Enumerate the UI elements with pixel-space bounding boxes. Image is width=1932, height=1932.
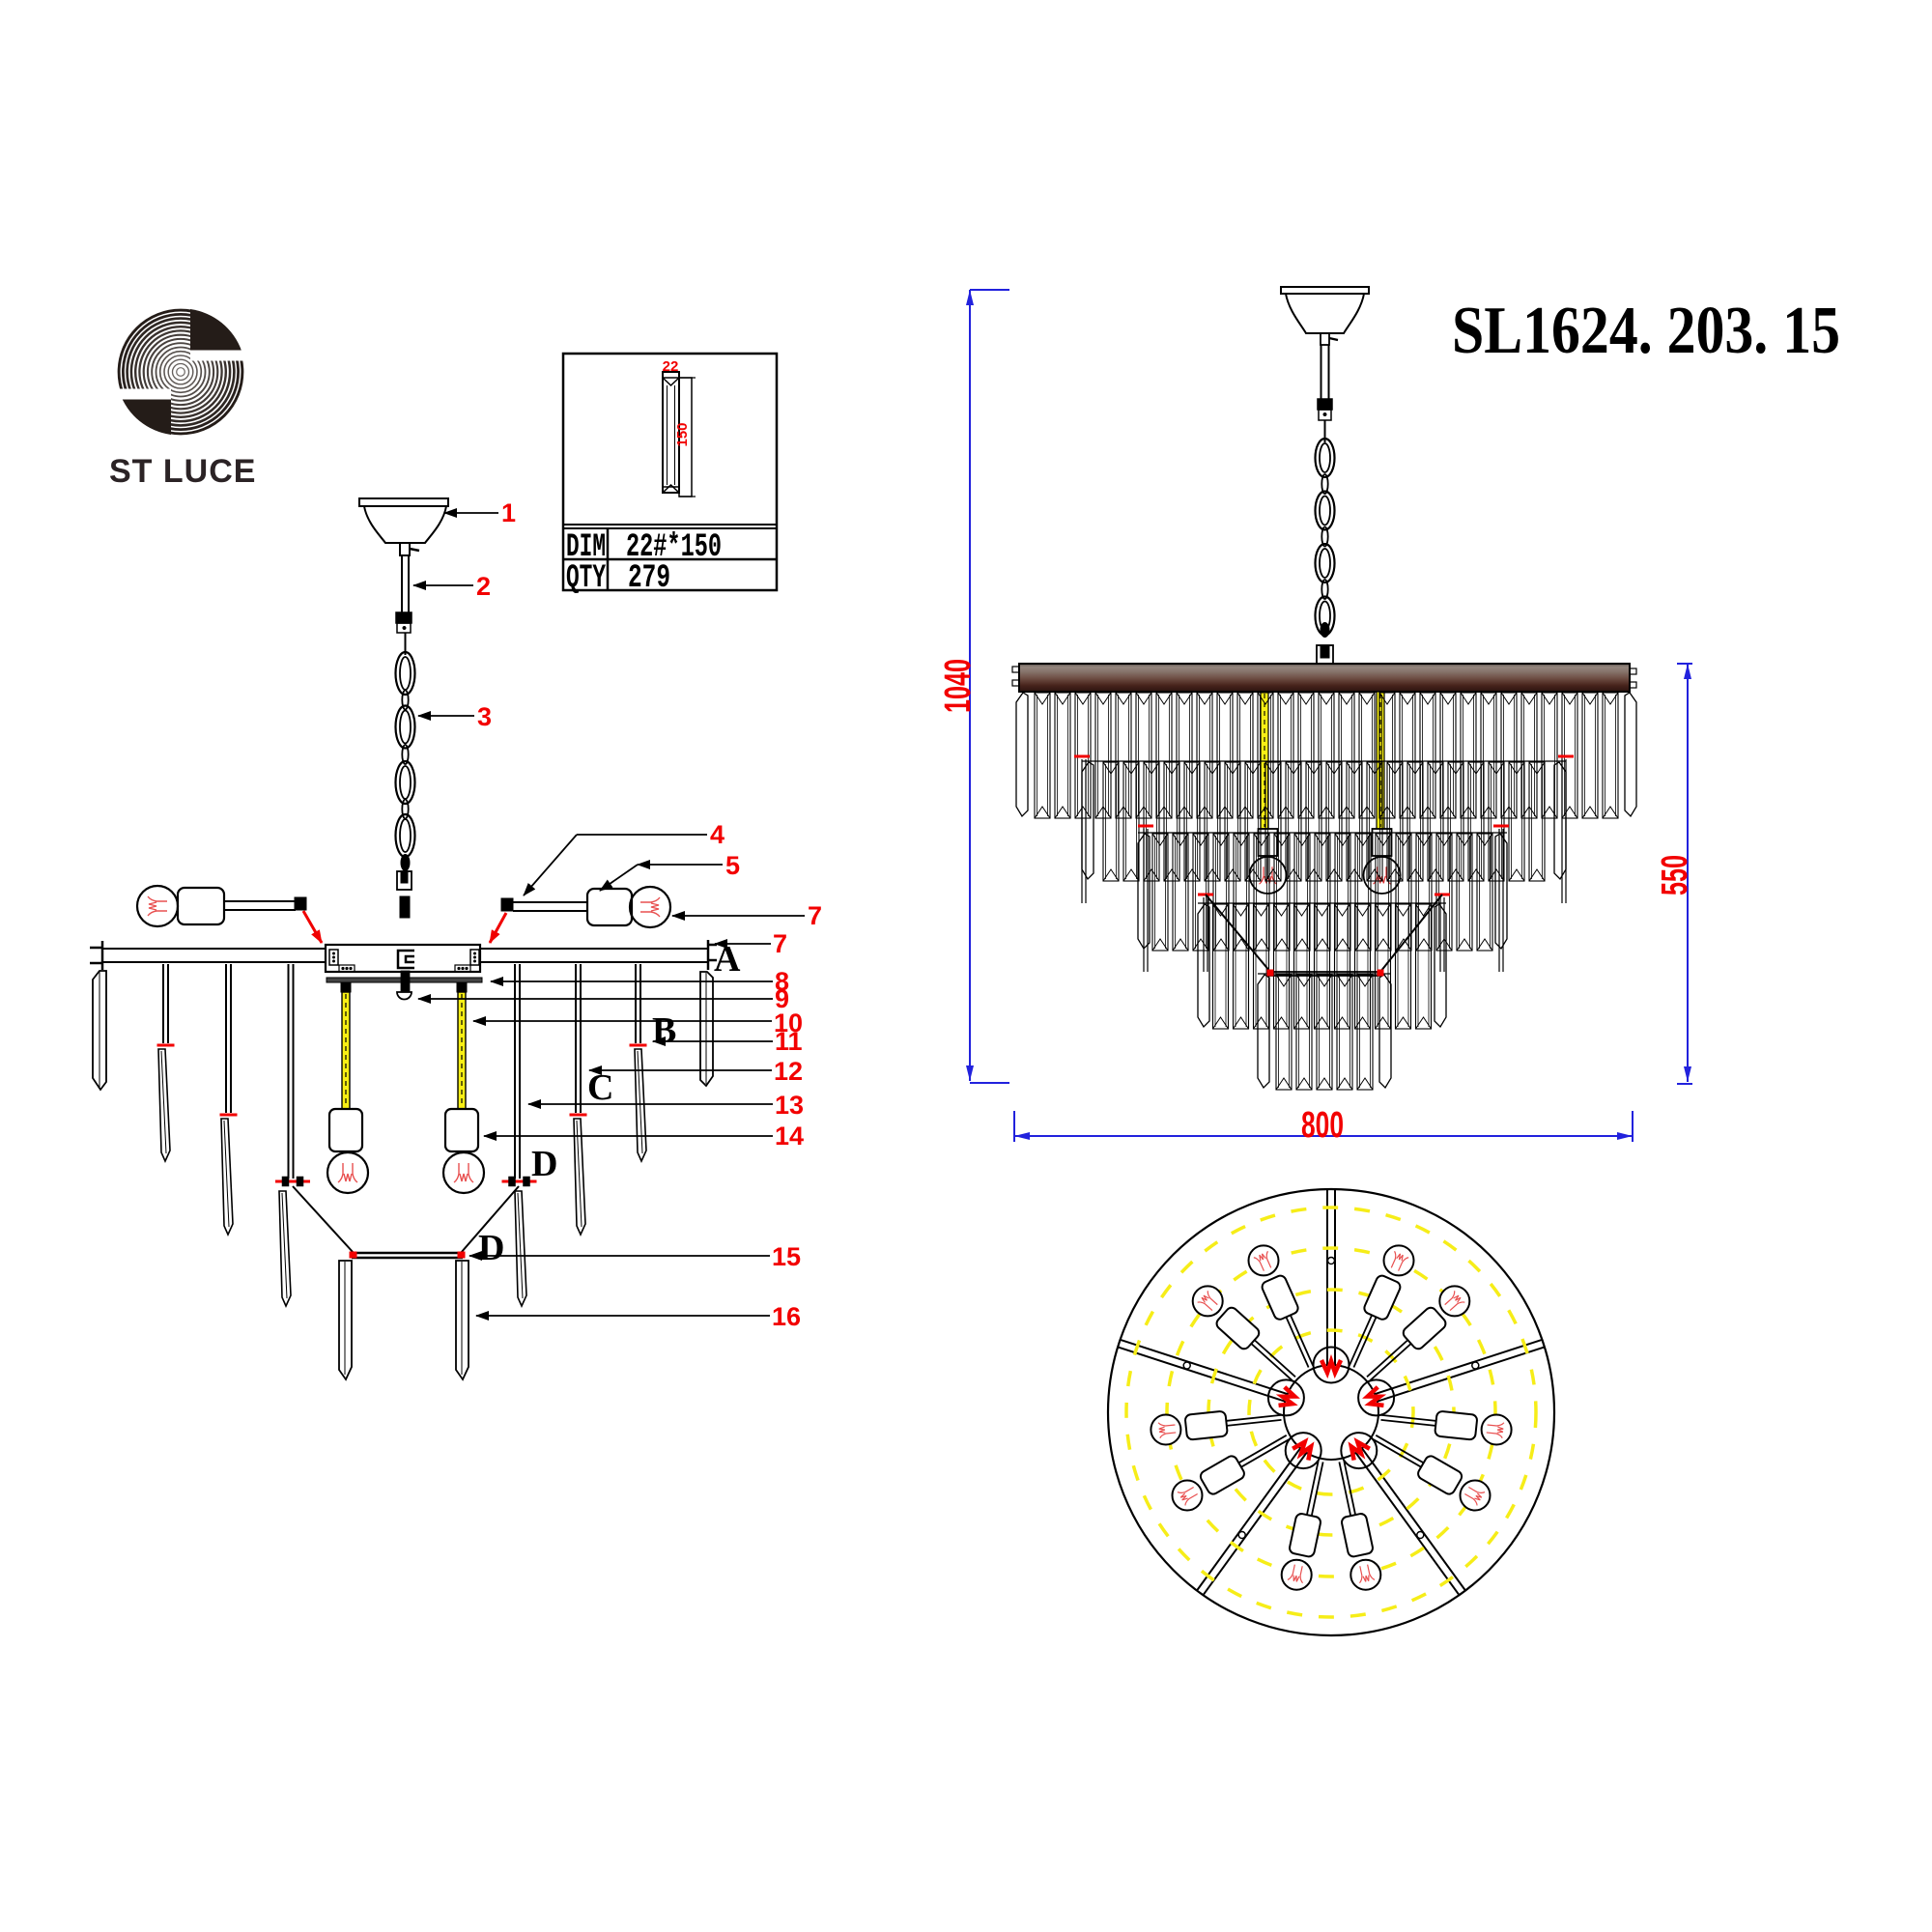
svg-text:22: 22 <box>663 358 679 375</box>
svg-text:7: 7 <box>773 929 787 958</box>
svg-text:C: C <box>587 1067 613 1108</box>
svg-text:16: 16 <box>772 1302 801 1331</box>
svg-text:D: D <box>478 1228 504 1268</box>
svg-text:150: 150 <box>674 422 691 446</box>
svg-text:SL1624. 203. 15: SL1624. 203. 15 <box>1452 294 1840 368</box>
svg-text:5: 5 <box>725 851 740 880</box>
svg-text:279: 279 <box>628 560 670 597</box>
svg-text:12: 12 <box>774 1057 803 1086</box>
svg-text:800: 800 <box>1301 1105 1344 1146</box>
svg-text:4: 4 <box>710 820 724 849</box>
svg-text:1040: 1040 <box>938 659 979 713</box>
svg-text:1: 1 <box>501 498 516 527</box>
svg-text:A: A <box>714 939 741 980</box>
svg-text:14: 14 <box>775 1122 804 1151</box>
svg-text:B: B <box>652 1010 676 1051</box>
svg-text:13: 13 <box>775 1091 804 1120</box>
svg-text:3: 3 <box>477 702 492 731</box>
svg-text:550: 550 <box>1655 855 1695 895</box>
svg-text:ST LUCE: ST LUCE <box>109 453 256 490</box>
svg-text:QTY: QTY <box>566 560 606 597</box>
svg-text:D: D <box>531 1144 557 1184</box>
svg-text:2: 2 <box>476 572 491 601</box>
svg-text:7: 7 <box>808 901 822 930</box>
svg-text:11: 11 <box>775 1027 803 1056</box>
svg-text:15: 15 <box>772 1242 801 1271</box>
